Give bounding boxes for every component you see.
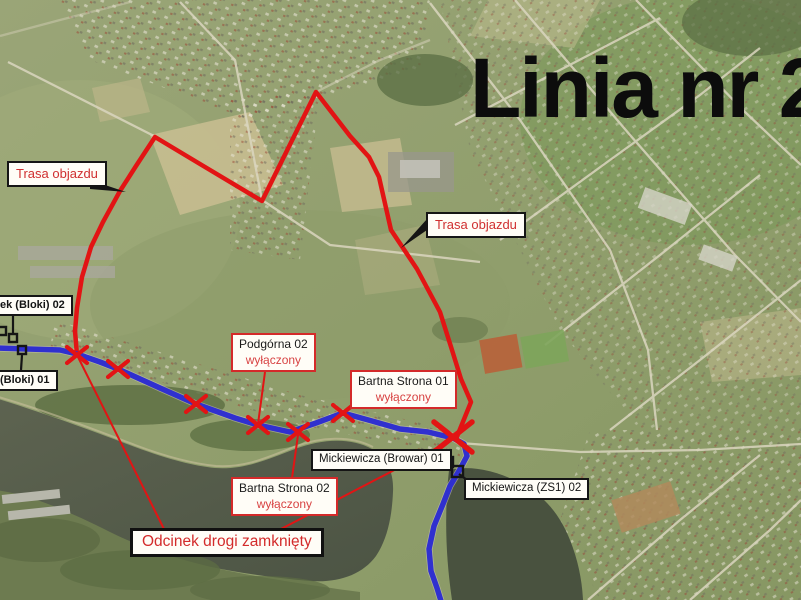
detour-route-label-left-text: Trasa objazdu <box>16 166 98 181</box>
closed-road-section-label: Odcinek drogi zamknięty <box>130 528 324 557</box>
stop-name: Mickiewicza (Browar) 01 <box>319 453 444 465</box>
stop-label-mickiewicza-zs1-02: Mickiewicza (ZS1) 02 <box>464 478 589 500</box>
map-title: Linia nr 2 <box>470 46 801 130</box>
detour-route-label-right-text: Trasa objazdu <box>435 217 517 232</box>
stop-status: wyłączony <box>239 497 330 513</box>
stop-name: ek (Bloki) 02 <box>0 299 65 311</box>
closed-road-section-text: Odcinek drogi zamknięty <box>142 533 312 550</box>
stop-label-mickiewicza-browar-01: Mickiewicza (Browar) 01 <box>311 449 452 471</box>
stop-label-bartna-strona-01: Bartna Strona 01 wyłączony <box>350 370 457 409</box>
stop-name: Mickiewicza (ZS1) 02 <box>472 482 581 494</box>
stop-label-podgorna-02: Podgórna 02 wyłączony <box>231 333 316 372</box>
stop-label-bartna-strona-02: Bartna Strona 02 wyłączony <box>231 477 338 516</box>
detour-route-label-right: Trasa objazdu <box>426 212 526 238</box>
detour-map: Linia nr 2 Trasa objazdu Trasa objazdu e… <box>0 0 801 600</box>
stop-name: Bartna Strona 02 <box>239 481 330 495</box>
stop-status: wyłączony <box>358 390 449 406</box>
stop-status: wyłączony <box>239 353 308 369</box>
detour-route-label-left: Trasa objazdu <box>7 161 107 187</box>
stop-name: (Bloki) 01 <box>0 374 50 386</box>
stop-label-bloki-01: (Bloki) 01 <box>0 370 58 391</box>
stop-name: Bartna Strona 01 <box>358 374 449 388</box>
stop-name: Podgórna 02 <box>239 337 308 351</box>
stop-label-bloki-02: ek (Bloki) 02 <box>0 295 73 316</box>
